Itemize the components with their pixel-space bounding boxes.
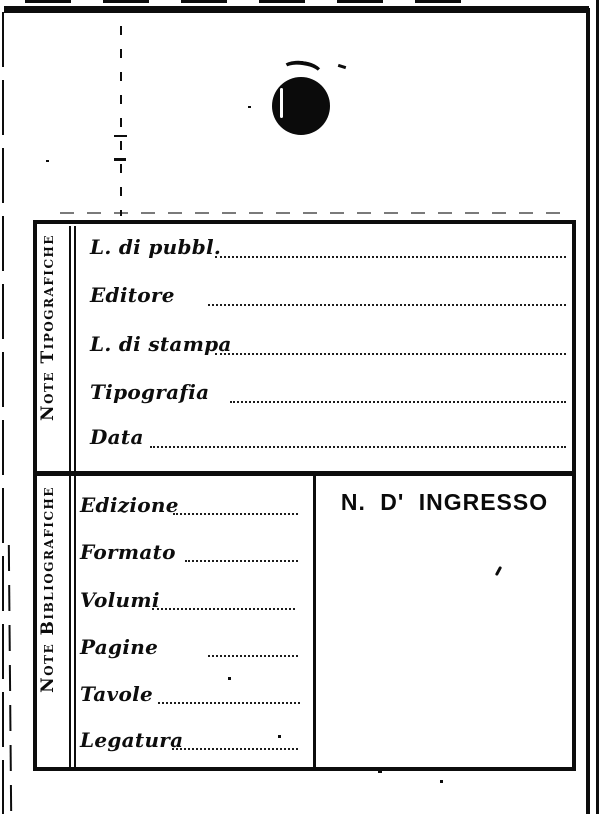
field-label-l-di-pubbl: L. di pubbl. (90, 237, 221, 257)
field-label-volumi: Volumi (80, 590, 160, 610)
field-line-editore (208, 304, 566, 306)
field-label-edizione: Edizione (80, 495, 179, 515)
label-column-rule-bibliografiche (69, 476, 76, 771)
section-divider-line (33, 471, 576, 476)
field-line-l-di-pubbl (215, 256, 566, 258)
field-line-l-di-stampa (215, 353, 566, 355)
scan-edge-top (4, 6, 589, 13)
field-line-legatura (172, 748, 298, 750)
field-label-legatura: Legatura (80, 730, 183, 750)
label-column-rule-tipografiche (69, 226, 76, 471)
scan-speck (378, 771, 382, 773)
section-label-note-bibliografiche: Note Bibliografiche (40, 486, 57, 693)
section-label-note-tipografiche: Note Tipografiche (40, 234, 57, 421)
hole-punch-highlight (280, 88, 283, 118)
scan-speck (440, 780, 443, 783)
scan-edge-top-outer (25, 0, 465, 3)
scan-speck (338, 64, 347, 69)
scan-speck (248, 106, 251, 108)
field-line-tavole (158, 702, 300, 704)
field-label-pagine: Pagine (80, 637, 158, 657)
ingresso-column-divider (313, 474, 316, 771)
field-line-pagine (208, 655, 298, 657)
field-label-formato: Formato (80, 542, 176, 562)
field-line-edizione (173, 513, 298, 515)
field-line-volumi (152, 608, 295, 610)
field-line-formato (185, 560, 298, 562)
fold-dashed-line (120, 26, 122, 216)
scan-edge-right-outer (596, 0, 599, 814)
ingresso-header: N. D' INGRESSO (316, 489, 573, 516)
field-label-editore: Editore (90, 285, 175, 305)
scan-edge-left (2, 12, 4, 814)
field-label-tavole: Tavole (80, 684, 153, 704)
scan-edge-left-broken (8, 545, 12, 814)
scan-shadow-line (60, 212, 560, 214)
scanned-library-card: Note Tipografiche Note Bibliografiche L.… (0, 0, 607, 814)
fold-tick (114, 158, 126, 161)
field-label-l-di-stampa: L. di stampa (90, 334, 232, 354)
scan-speck (46, 160, 49, 162)
field-label-data: Data (90, 427, 144, 447)
field-line-tipografia (230, 401, 566, 403)
fold-tick (114, 135, 127, 137)
field-line-data (150, 446, 566, 448)
scan-edge-right-inner (586, 8, 590, 814)
field-label-tipografia: Tipografia (90, 382, 209, 402)
